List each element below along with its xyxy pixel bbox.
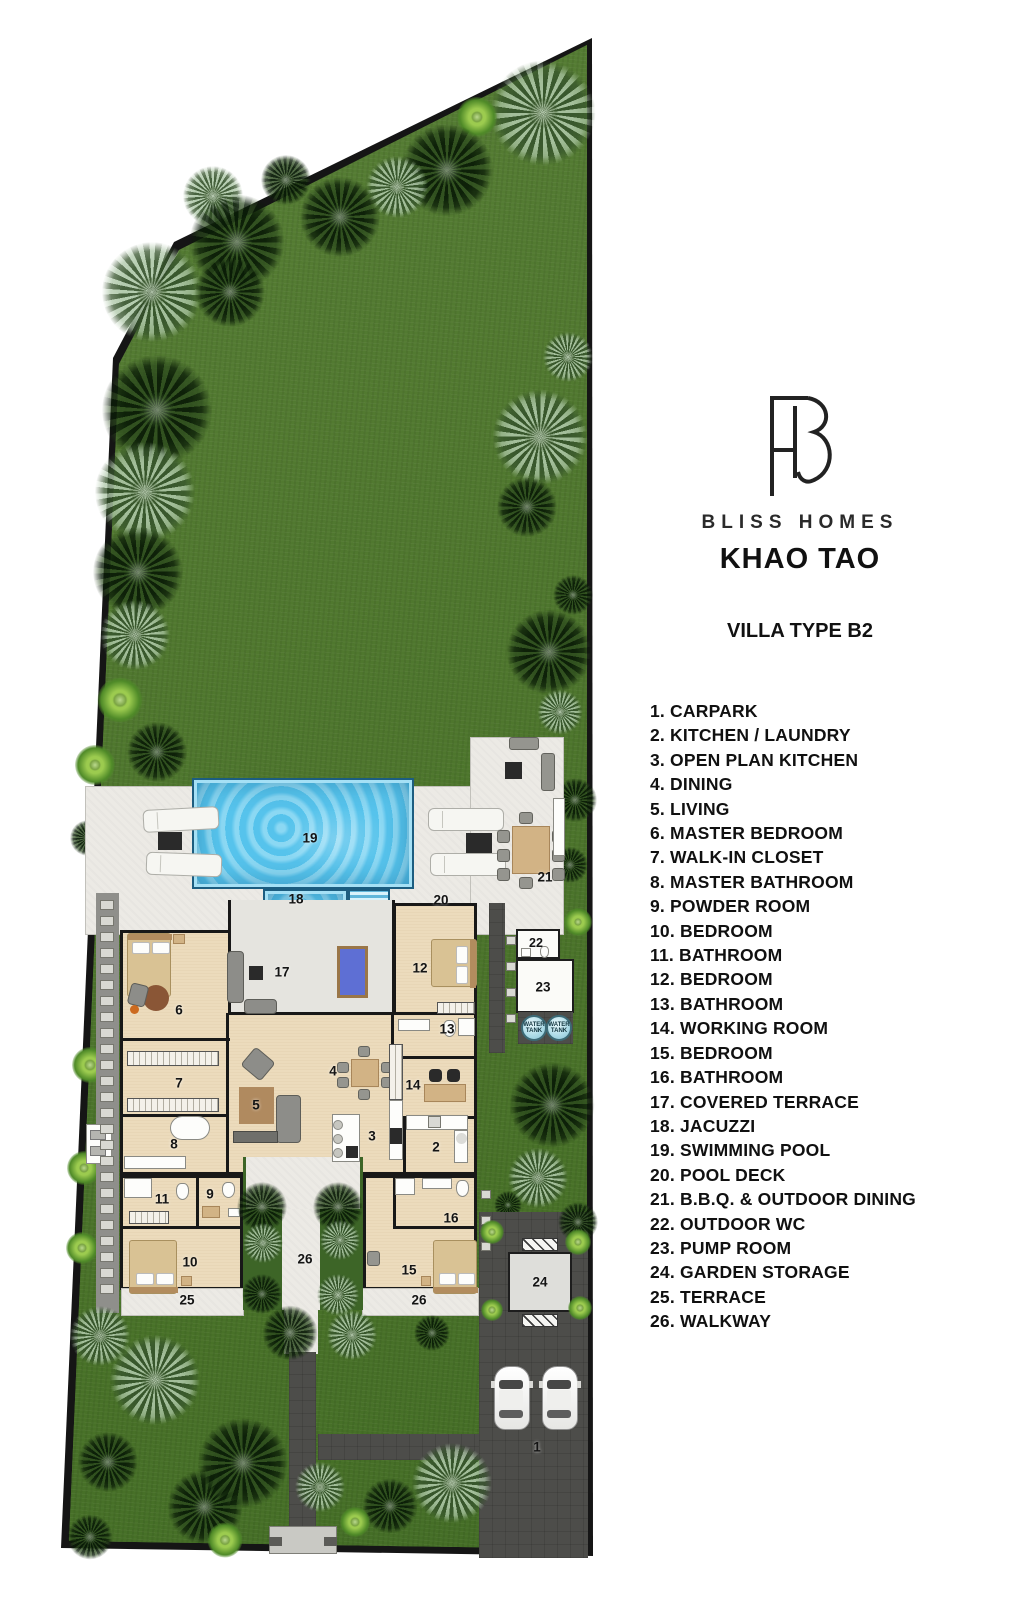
- page: WATER TANK WATER TANK: [0, 0, 1032, 1600]
- legend-item: 13. BATHROOM: [650, 992, 916, 1016]
- palm-tree: [510, 1063, 595, 1148]
- legend-item: 16. BATHROOM: [650, 1065, 916, 1089]
- room-label-bbq-dining: 21: [537, 870, 552, 885]
- legend-item: 17. COVERED TERRACE: [650, 1090, 916, 1114]
- room-label-walkin-closet: 7: [175, 1076, 183, 1091]
- brand-panel: BLISS HOMES KHAO TAO VILLA TYPE B2: [620, 392, 980, 643]
- legend-item: 7. WALK-IN CLOSET: [650, 845, 916, 869]
- room-label-living: 5: [252, 1098, 260, 1113]
- palm-tree: [405, 1436, 500, 1531]
- room-label-bedroom12: 12: [412, 961, 427, 976]
- legend-item: 11. BATHROOM: [650, 943, 916, 967]
- legend-item: 25. TERRACE: [650, 1285, 916, 1309]
- room-label-powder-room: 9: [206, 1187, 214, 1202]
- legend-item: 15. BEDROOM: [650, 1041, 916, 1065]
- room-label-bedroom15: 15: [401, 1263, 416, 1278]
- legend-item: 21. B.B.Q. & OUTDOOR DINING: [650, 1187, 916, 1211]
- legend-item: 6. MASTER BEDROOM: [650, 821, 916, 845]
- legend-item: 3. OPEN PLAN KITCHEN: [650, 748, 916, 772]
- room-label-bathroom16: 16: [443, 1211, 458, 1226]
- room-label-master-bathroom: 8: [170, 1137, 178, 1152]
- room-label-outdoor-wc: 22: [529, 936, 543, 950]
- legend-item: 8. MASTER BATHROOM: [650, 870, 916, 894]
- room-label-bathroom11: 11: [155, 1192, 169, 1207]
- room-label-terrace-left: 25: [179, 1293, 194, 1308]
- palm-tree: [409, 1310, 455, 1356]
- legend-item: 22. OUTDOOR WC: [650, 1212, 916, 1236]
- room-label-open-plan-kitchen: 3: [368, 1129, 376, 1144]
- palm-tree: [67, 1514, 113, 1560]
- legend-item: 20. POOL DECK: [650, 1163, 916, 1187]
- room-label-carpark: 1: [533, 1440, 541, 1455]
- room-label-bathroom13: 13: [439, 1022, 454, 1037]
- legend-item: 19. SWIMMING POOL: [650, 1138, 916, 1162]
- room-label-terrace-right: 26: [411, 1293, 426, 1308]
- bush: [476, 1216, 507, 1247]
- palm-tree: [293, 1460, 346, 1513]
- room-label-walkway: 26: [297, 1252, 312, 1267]
- room-label-kitchen-laundry: 2: [432, 1140, 440, 1155]
- room-label-dining: 4: [329, 1064, 337, 1079]
- legend-item: 10. BEDROOM: [650, 919, 916, 943]
- project-name: KHAO TAO: [620, 543, 980, 576]
- bush: [563, 1291, 597, 1325]
- room-label-pool-deck: 20: [433, 893, 448, 908]
- bush: [480, 1298, 504, 1322]
- legend-item: 18. JACUZZI: [650, 1114, 916, 1138]
- room-label-garden-storage: 24: [532, 1275, 547, 1290]
- room-label-covered-terrace: 17: [274, 965, 289, 980]
- room-label-master-bedroom: 6: [175, 1003, 183, 1018]
- legend-item: 2. KITCHEN / LAUNDRY: [650, 723, 916, 747]
- legend-item: 24. GARDEN STORAGE: [650, 1260, 916, 1284]
- legend-item: 5. LIVING: [650, 797, 916, 821]
- legend: 1. CARPARK 2. KITCHEN / LAUNDRY 3. OPEN …: [650, 699, 916, 1334]
- legend-item: 4. DINING: [650, 772, 916, 796]
- legend-item: 14. WORKING ROOM: [650, 1016, 916, 1040]
- legend-item: 26. WALKWAY: [650, 1309, 916, 1333]
- villa-type-title: VILLA TYPE B2: [620, 620, 980, 643]
- legend-item: 1. CARPARK: [650, 699, 916, 723]
- legend-item: 9. POWDER ROOM: [650, 894, 916, 918]
- bliss-homes-logo: [750, 392, 850, 502]
- palm-tree: [71, 1425, 144, 1498]
- room-label-swimming-pool: 19: [302, 831, 317, 846]
- legend-item: 12. BEDROOM: [650, 967, 916, 991]
- legend-item: 23. PUMP ROOM: [650, 1236, 916, 1260]
- room-label-bedroom10: 10: [182, 1255, 197, 1270]
- room-label-jacuzzi: 18: [288, 892, 303, 907]
- room-label-pump-room: 23: [535, 980, 550, 995]
- company-name: BLISS HOMES: [620, 512, 980, 534]
- room-label-working-room: 14: [405, 1078, 420, 1093]
